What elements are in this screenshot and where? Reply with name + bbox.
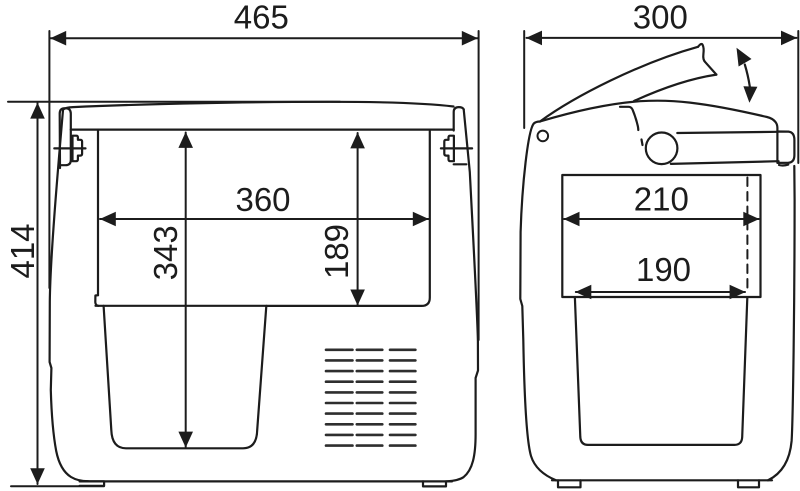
svg-text:414: 414 <box>4 223 41 278</box>
svg-text:189: 189 <box>318 224 355 279</box>
svg-text:190: 190 <box>636 251 691 288</box>
svg-text:343: 343 <box>147 225 184 280</box>
svg-text:300: 300 <box>633 0 688 36</box>
svg-text:360: 360 <box>235 181 290 218</box>
svg-text:210: 210 <box>634 181 689 218</box>
svg-text:465: 465 <box>234 0 289 36</box>
